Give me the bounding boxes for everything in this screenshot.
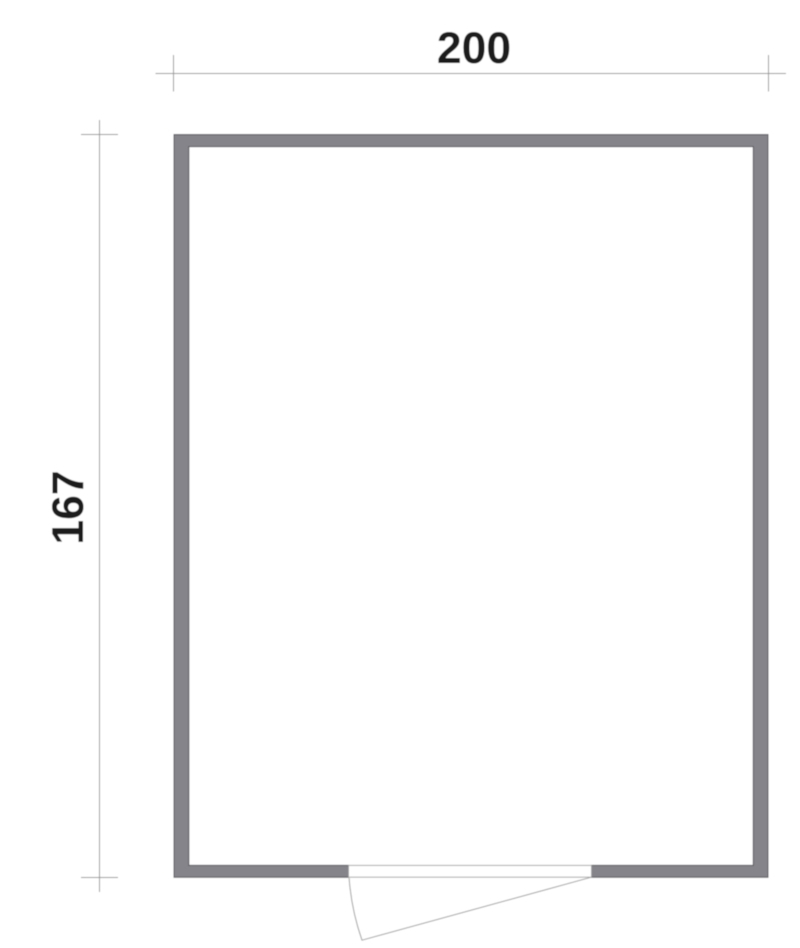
svg-text:200: 200 [437,24,511,73]
svg-text:167: 167 [44,470,93,544]
